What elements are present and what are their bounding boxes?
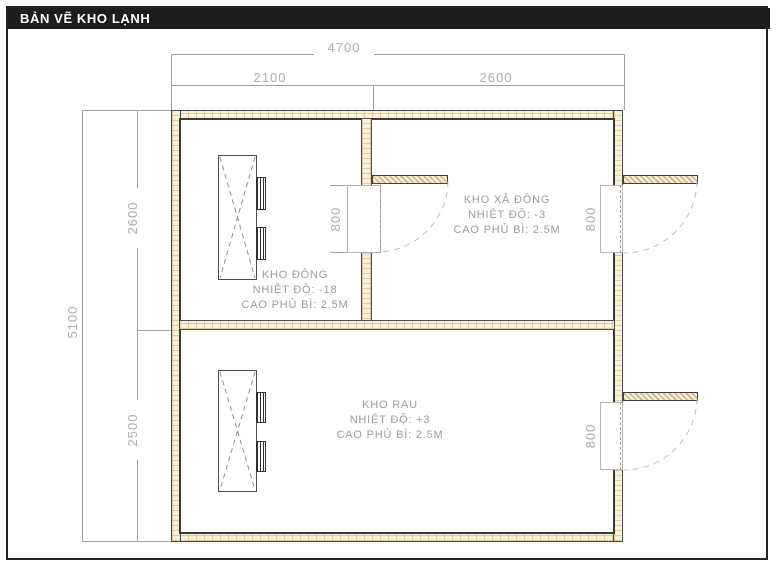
dim-height-top: 2600 bbox=[126, 188, 140, 248]
ext-line-door1-top bbox=[330, 185, 347, 186]
evaporator-unit-2 bbox=[218, 370, 257, 492]
dim-line-overall-width bbox=[171, 54, 625, 55]
door3-leaf bbox=[623, 392, 698, 401]
dim-line-overall-height bbox=[82, 110, 83, 541]
door-opening-1 bbox=[347, 185, 381, 253]
door2-closed-line bbox=[620, 185, 621, 253]
ext-line-left bbox=[171, 54, 172, 110]
door1-closed-line bbox=[380, 185, 381, 253]
dim-overall-width: 4700 bbox=[314, 41, 374, 55]
evaporator-2-fan-a bbox=[256, 392, 266, 423]
cold-storage-drawing: BẢN VẼ KHO LẠNH 4700 2100 2600 5100 2600… bbox=[0, 0, 778, 572]
dim-door3-width: 800 bbox=[584, 406, 598, 466]
room-clearance: CAO PHỦ BÌ: 2.5M bbox=[422, 223, 592, 238]
door3-closed-line bbox=[620, 402, 621, 470]
room-temperature: NHIỆT ĐỘ: +3 bbox=[305, 413, 475, 428]
door2-leaf bbox=[623, 175, 698, 184]
room-clearance: CAO PHỦ BÌ: 2.5M bbox=[305, 428, 475, 443]
dim-width-right: 2600 bbox=[466, 71, 526, 85]
ext-line-door1-bottom bbox=[330, 252, 347, 253]
room-clearance: CAO PHỦ BÌ: 2.5M bbox=[210, 298, 380, 313]
evaporator-1-fan-a bbox=[256, 177, 266, 210]
ext-line-right bbox=[624, 54, 625, 110]
evaporator-unit-1 bbox=[218, 155, 257, 280]
dim-height-bottom: 2500 bbox=[126, 400, 140, 460]
wall-partition-horizontal bbox=[179, 320, 615, 330]
drawing-title: BẢN VẼ KHO LẠNH bbox=[8, 11, 150, 26]
room-label-kho-dong: KHO ĐÔNG NHIỆT ĐỘ: -18 CAO PHỦ BÌ: 2.5M bbox=[210, 268, 380, 313]
dim-width-left: 2100 bbox=[240, 71, 300, 85]
dim-overall-height: 5100 bbox=[66, 292, 80, 352]
room-name: KHO XẢ ĐÔNG bbox=[422, 193, 592, 208]
dim-door1-width: 800 bbox=[329, 189, 343, 249]
evaporator-2-fan-b bbox=[256, 441, 266, 472]
room-label-kho-xa-dong: KHO XẢ ĐÔNG NHIỆT ĐỘ: -3 CAO PHỦ BÌ: 2.5… bbox=[422, 193, 592, 238]
dim-line-width-split bbox=[171, 85, 625, 86]
ext-line-bottom-left bbox=[82, 541, 171, 542]
room-temperature: NHIỆT ĐỘ: -3 bbox=[422, 208, 592, 223]
ext-line-mid-left bbox=[137, 330, 171, 331]
evaporator-1-fan-b bbox=[256, 227, 266, 260]
room-label-kho-rau: KHO RAU NHIỆT ĐỘ: +3 CAO PHỦ BÌ: 2.5M bbox=[305, 398, 475, 443]
dim-line-height-split bbox=[137, 110, 138, 541]
evaporator-1-cross bbox=[219, 156, 256, 279]
room-name: KHO ĐÔNG bbox=[210, 268, 380, 283]
room-temperature: NHIỆT ĐỘ: -18 bbox=[210, 283, 380, 298]
door1-leaf bbox=[372, 175, 448, 184]
ext-line-width-split bbox=[373, 85, 374, 110]
evaporator-2-cross bbox=[219, 371, 256, 491]
room-name: KHO RAU bbox=[305, 398, 475, 413]
title-bar: BẢN VẼ KHO LẠNH bbox=[8, 8, 770, 29]
ext-line-top-left bbox=[82, 110, 171, 111]
